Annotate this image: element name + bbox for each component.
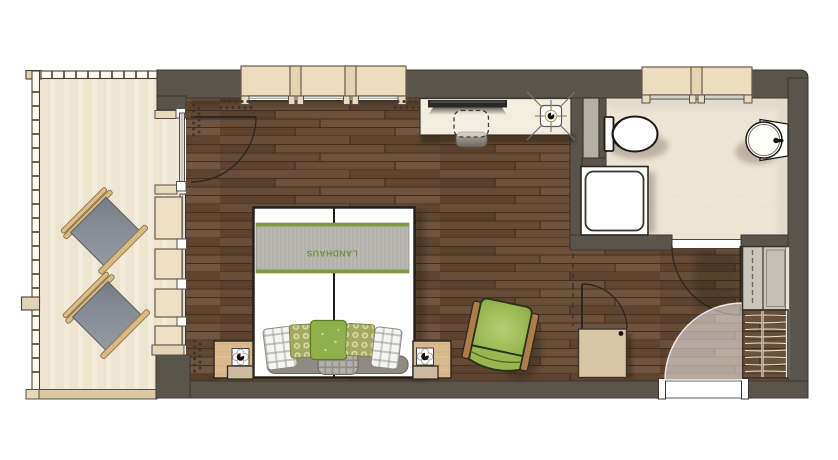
svg-text:LANDHAUS: LANDHAUS [306, 249, 357, 259]
